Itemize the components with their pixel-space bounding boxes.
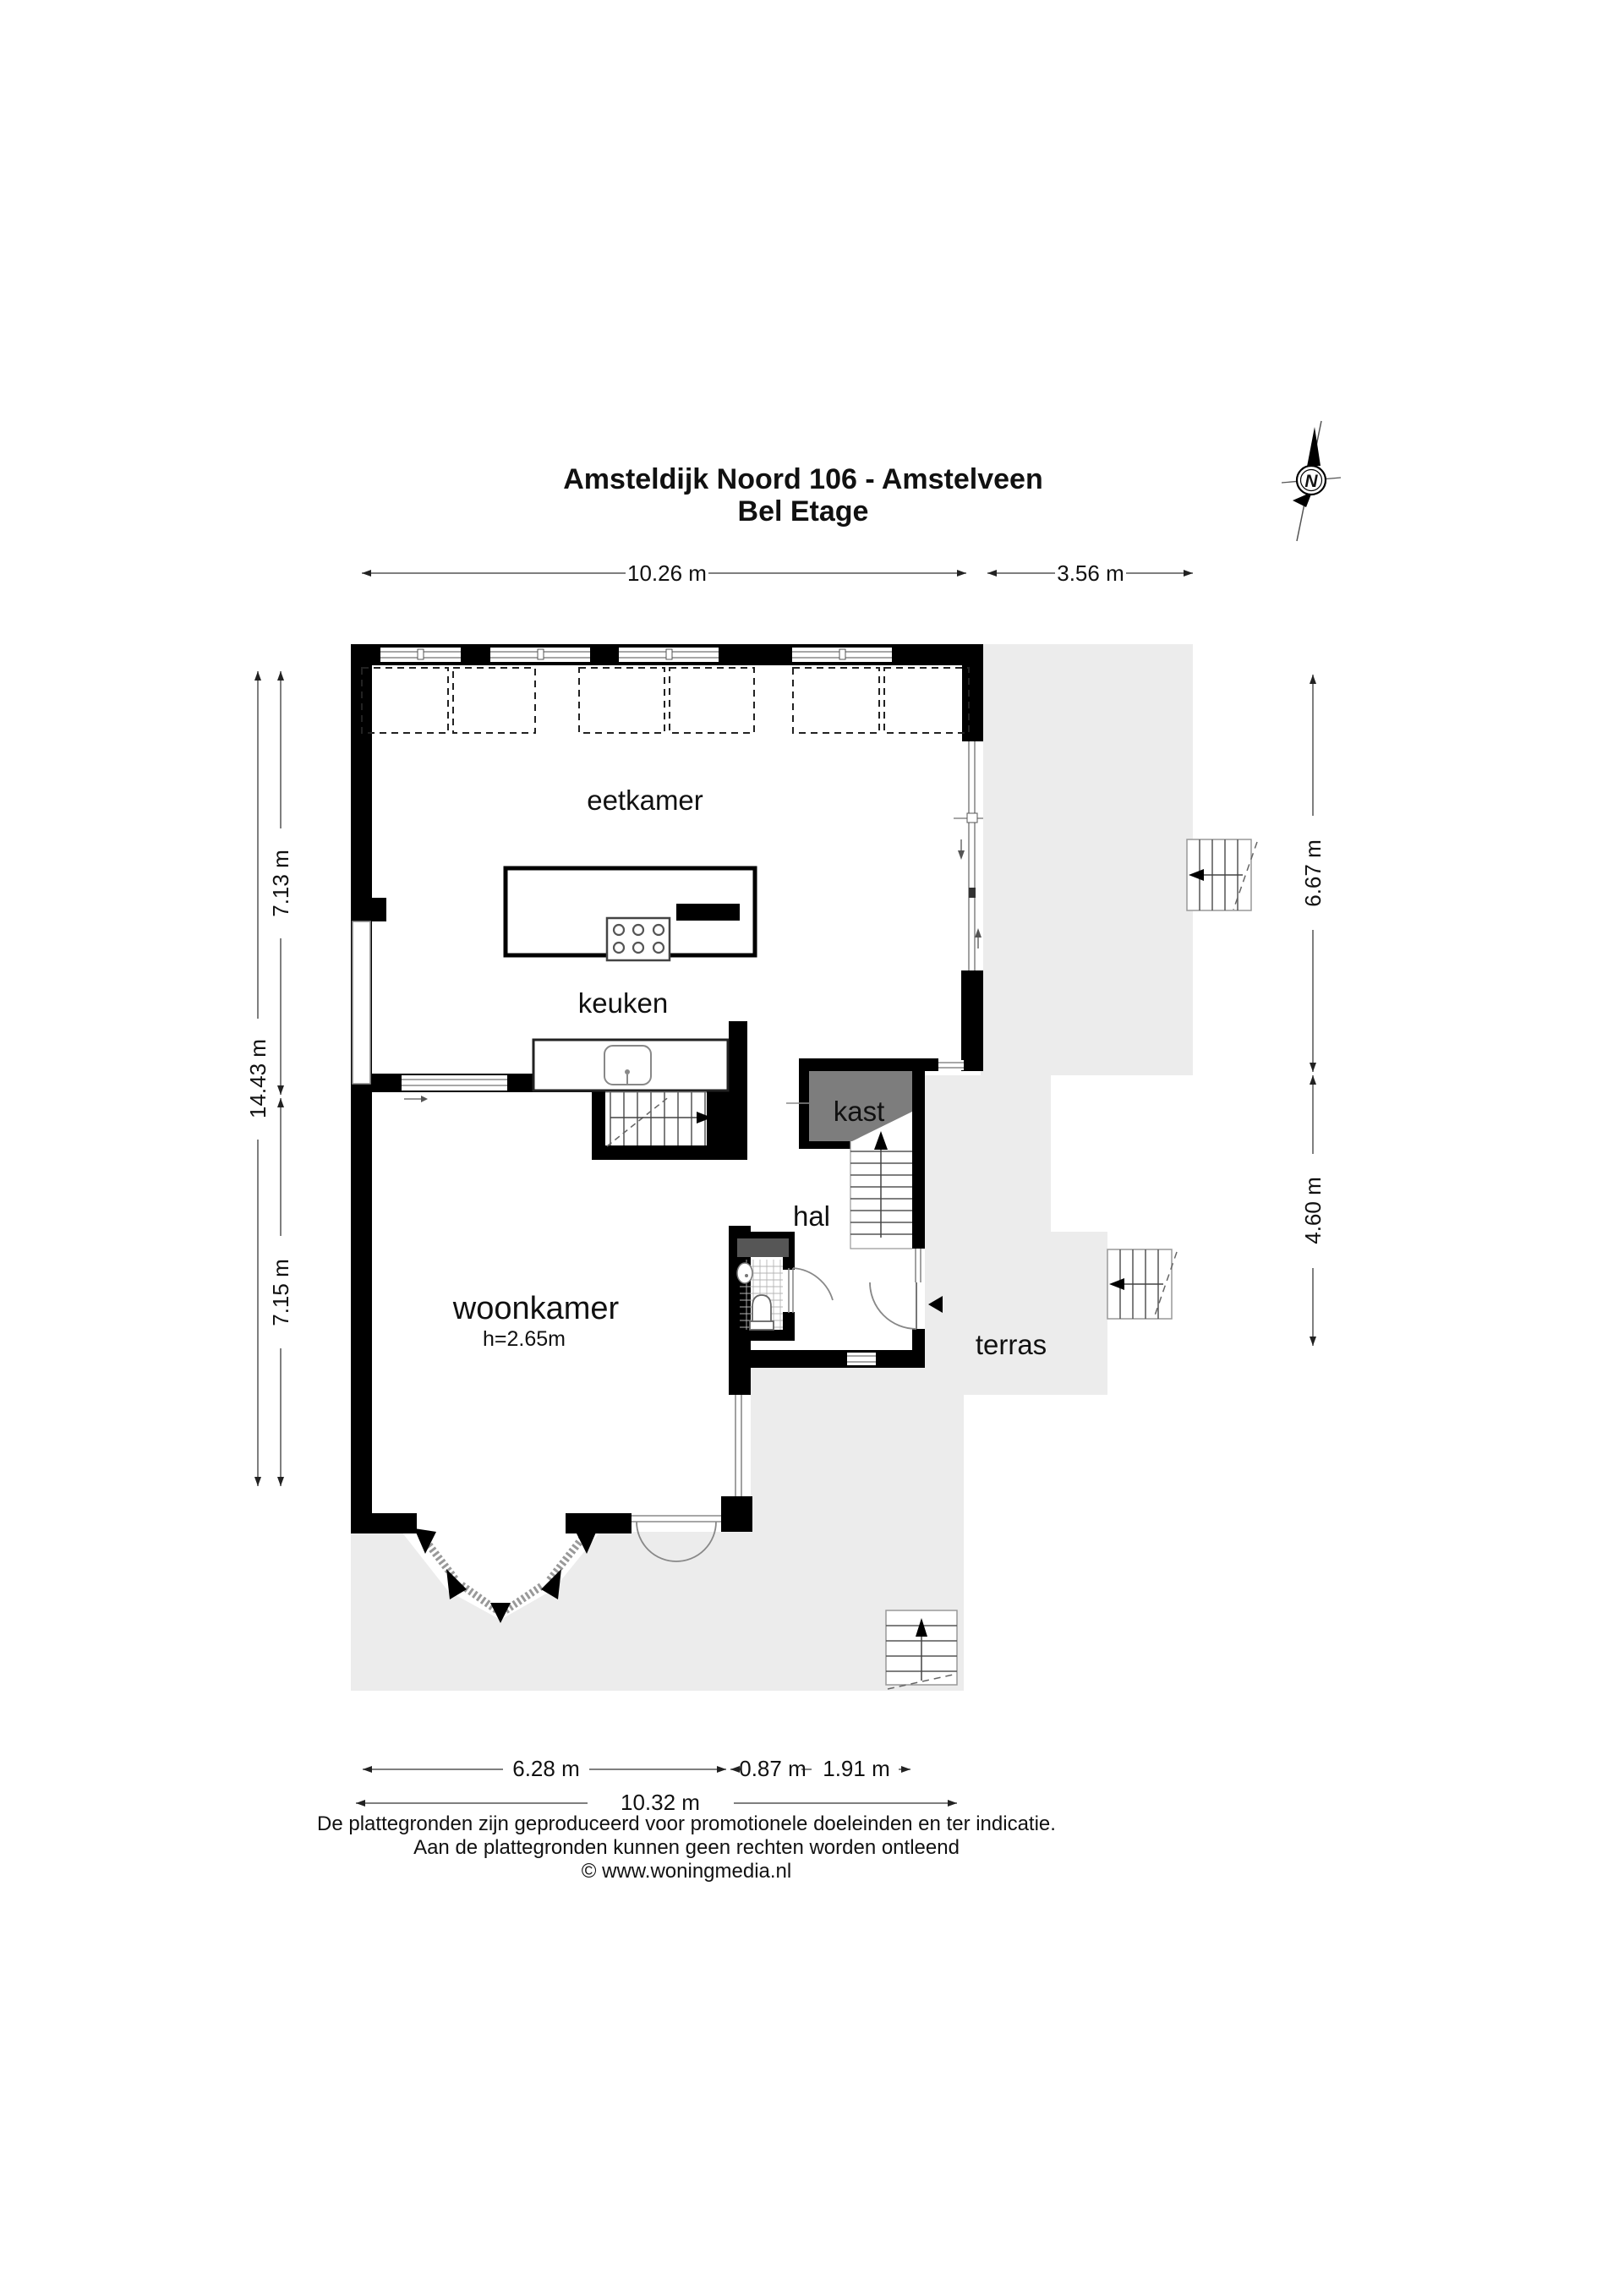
room-label-woonkamer: woonkamer bbox=[452, 1291, 620, 1326]
dim-label-bottom-door: 0.87 m bbox=[739, 1756, 807, 1781]
dim-label-right-upper: 6.67 m bbox=[1300, 839, 1326, 907]
kitchen-counter bbox=[533, 1040, 728, 1091]
compass-north-label: N bbox=[1304, 472, 1318, 491]
wc-basin-drain bbox=[745, 1274, 748, 1277]
toilet-tank bbox=[750, 1321, 774, 1330]
floor-plan-canvas: eetkamer keuken kast hal woonkamer h=2.6… bbox=[0, 0, 1624, 2296]
north-compass-icon: N bbox=[1282, 421, 1341, 541]
room-label-keuken: keuken bbox=[578, 987, 668, 1019]
room-label-hal: hal bbox=[793, 1200, 830, 1232]
external-stairs-mid-right bbox=[1107, 1249, 1177, 1319]
mullion bbox=[967, 813, 977, 823]
room-ceiling-height: h=2.65m bbox=[483, 1327, 566, 1351]
footer-copyright: © www.woningmedia.nl bbox=[582, 1860, 791, 1883]
footer-disclaimer-line1: De plattegronden zijn geproduceerd voor … bbox=[317, 1812, 1056, 1835]
plan-title: Amsteldijk Noord 106 - Amstelveen bbox=[563, 463, 1042, 495]
toilet-bowl bbox=[752, 1295, 771, 1323]
dim-label-left-upper: 7.13 m bbox=[268, 850, 293, 917]
terrace-side-strip-wide bbox=[1051, 1232, 1107, 1395]
mullion bbox=[666, 649, 672, 659]
dim-label-bottom-total: 10.32 m bbox=[621, 1790, 700, 1815]
burner bbox=[653, 925, 664, 935]
external-stairs-bottom bbox=[886, 1610, 957, 1689]
wc-basin bbox=[737, 1263, 752, 1283]
room-label-terras: terras bbox=[976, 1329, 1047, 1360]
mullion bbox=[839, 649, 845, 659]
mullion bbox=[538, 649, 544, 659]
glass-joint bbox=[969, 888, 976, 898]
plan-subtitle: Bel Etage bbox=[738, 495, 869, 528]
dim-label-top-main: 10.26 m bbox=[627, 560, 707, 586]
dim-label-left-lower: 7.15 m bbox=[268, 1259, 293, 1326]
terrace-upper-platform bbox=[981, 644, 1193, 1075]
dim-label-bottom-bay: 6.28 m bbox=[512, 1756, 580, 1781]
external-stairs-top-right bbox=[1187, 839, 1257, 910]
burner bbox=[633, 943, 643, 953]
burner bbox=[614, 925, 624, 935]
burner bbox=[633, 925, 643, 935]
mullion bbox=[418, 649, 424, 659]
faucet-head bbox=[625, 1069, 630, 1074]
room-label-kast: kast bbox=[834, 1096, 885, 1127]
dim-label-top-right: 3.56 m bbox=[1057, 560, 1124, 586]
footer-disclaimer-line2: Aan de plattegronden kunnen geen rechten… bbox=[413, 1836, 960, 1859]
room-label-eetkamer: eetkamer bbox=[587, 784, 703, 816]
wc-shelf bbox=[737, 1238, 789, 1257]
dim-label-left-total: 14.43 m bbox=[245, 1039, 271, 1118]
dim-label-bottom-right: 1.91 m bbox=[823, 1756, 890, 1781]
burner bbox=[653, 943, 664, 953]
dim-label-right-lower: 4.60 m bbox=[1300, 1177, 1326, 1244]
island-hob-vent bbox=[676, 904, 740, 921]
kitchen-island bbox=[506, 868, 755, 960]
burner bbox=[614, 943, 624, 953]
